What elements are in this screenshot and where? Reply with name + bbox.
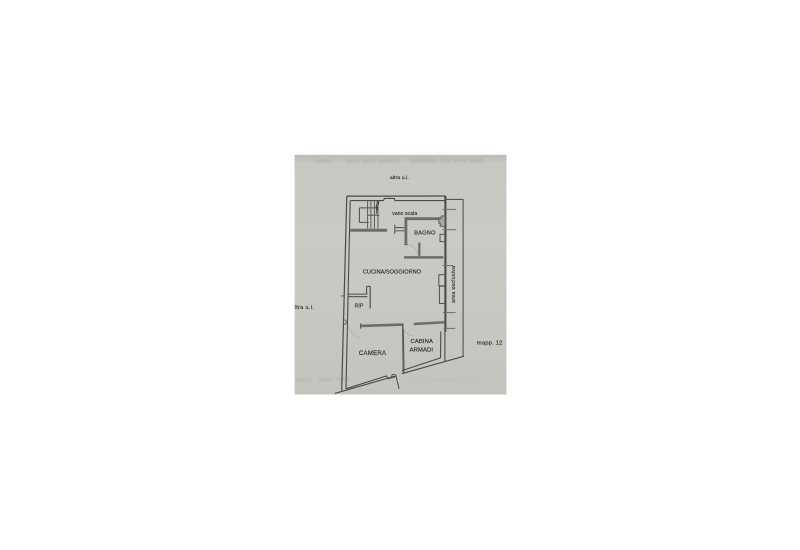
svg-text:altra u.i.: altra u.i. [390, 175, 409, 181]
svg-text:mapp. 12: mapp. 12 [477, 340, 503, 346]
svg-text:ARMADI: ARMADI [410, 348, 434, 354]
svg-text:BAGNO: BAGNO [414, 231, 436, 237]
svg-text:ltra u.i.: ltra u.i. [295, 305, 315, 311]
svg-text:area esclusiva: area esclusiva [451, 266, 457, 303]
svg-text:CAMERA: CAMERA [359, 351, 386, 357]
svg-text:CUCINA/SOGGIORNO: CUCINA/SOGGIORNO [363, 269, 422, 275]
svg-text:CABINA: CABINA [411, 339, 434, 345]
svg-text:RIP: RIP [355, 303, 364, 309]
svg-text:ALA GIOVANNI ESITO: ALA GIOVANNI ESITO [404, 377, 480, 384]
svg-text:vano scala: vano scala [392, 211, 417, 217]
